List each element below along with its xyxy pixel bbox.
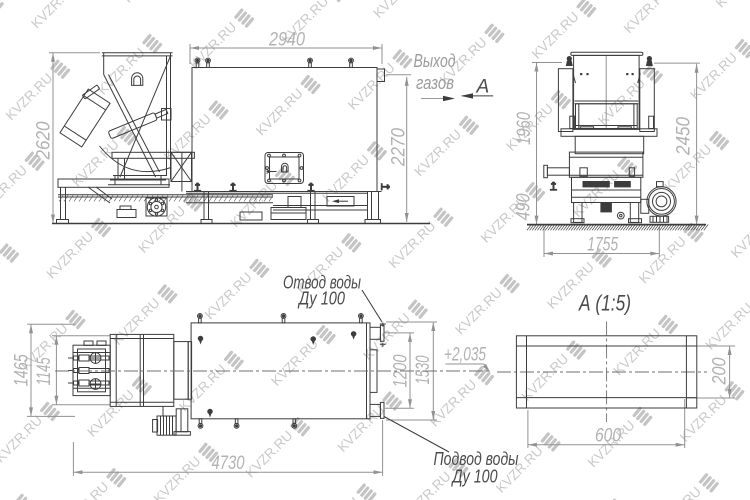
svg-text:200: 200 — [710, 357, 731, 385]
svg-text:Ду 100: Ду 100 — [451, 467, 498, 487]
svg-text:Выход: Выход — [414, 51, 456, 71]
svg-text:А: А — [476, 77, 490, 98]
svg-text:1465: 1465 — [11, 354, 32, 386]
svg-text:1145: 1145 — [34, 357, 55, 385]
svg-text:2270: 2270 — [389, 128, 410, 167]
svg-text:2450: 2450 — [674, 117, 695, 156]
svg-text:А (1:5): А (1:5) — [577, 291, 631, 316]
svg-text:600: 600 — [595, 426, 621, 447]
svg-text:2940: 2940 — [268, 30, 305, 51]
svg-text:2620: 2620 — [34, 121, 55, 160]
svg-text:+2,035: +2,035 — [444, 344, 486, 365]
svg-text:Ду 100: Ду 100 — [297, 289, 345, 309]
svg-text:1530: 1530 — [413, 355, 434, 384]
svg-text:4730: 4730 — [212, 453, 245, 474]
svg-text:1960: 1960 — [514, 112, 535, 145]
svg-text:1755: 1755 — [587, 235, 618, 256]
svg-text:490: 490 — [514, 193, 535, 220]
svg-text:газов: газов — [416, 73, 454, 93]
